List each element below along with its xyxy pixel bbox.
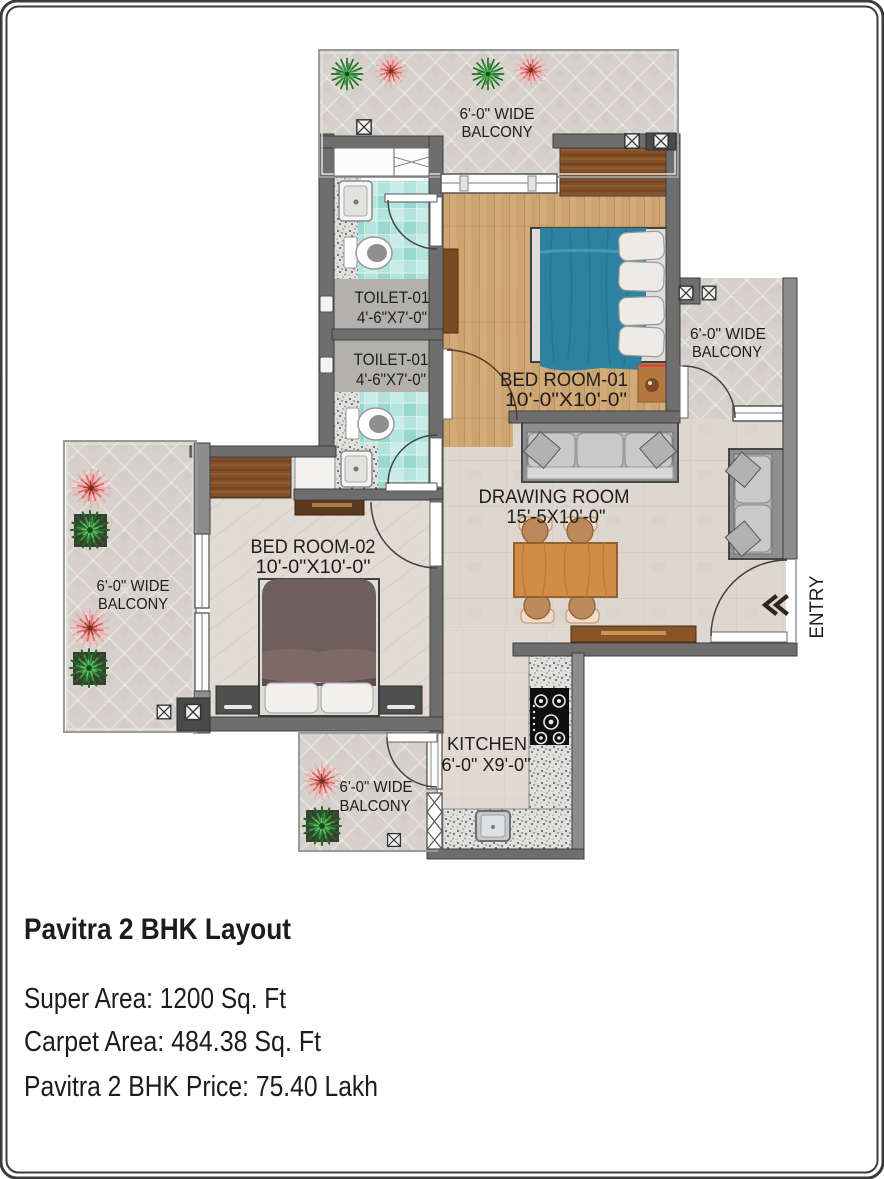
svg-text:6'-0" WIDE: 6'-0" WIDE [340, 779, 413, 796]
svg-text:DRAWING ROOM: DRAWING ROOM [479, 487, 630, 508]
svg-text:BALCONY: BALCONY [98, 596, 168, 613]
svg-text:6'-0" WIDE: 6'-0" WIDE [460, 106, 535, 123]
svg-text:BALCONY: BALCONY [692, 344, 762, 361]
svg-text:6'-0" WIDE: 6'-0" WIDE [97, 578, 170, 595]
svg-text:BED ROOM-02: BED ROOM-02 [251, 537, 376, 558]
svg-text:4'-6"X7'-0": 4'-6"X7'-0" [357, 308, 427, 327]
svg-text:Carpet Area: 484.38 Sq. Ft: Carpet Area: 484.38 Sq. Ft [24, 1026, 321, 1058]
svg-text:BALCONY: BALCONY [340, 798, 411, 815]
svg-text:10'-0"X10'-0": 10'-0"X10'-0" [256, 557, 371, 578]
svg-text:6'-0" WIDE: 6'-0" WIDE [690, 326, 766, 343]
svg-text:Super Area: 1200 Sq. Ft: Super Area: 1200 Sq. Ft [24, 983, 286, 1015]
svg-text:Pavitra 2 BHK Layout: Pavitra 2 BHK Layout [24, 913, 291, 946]
svg-text:BALCONY: BALCONY [462, 124, 533, 141]
svg-text:BED ROOM-01: BED ROOM-01 [500, 370, 628, 391]
svg-text:4'-6"X7'-0": 4'-6"X7'-0" [356, 370, 426, 389]
svg-text:ENTRY: ENTRY [806, 576, 828, 639]
svg-text:TOILET-01: TOILET-01 [355, 288, 430, 307]
svg-text:6'-0" X9'-0": 6'-0" X9'-0" [442, 755, 531, 775]
svg-text:TOILET-01: TOILET-01 [354, 350, 429, 369]
svg-text:10'-0"X10'-0": 10'-0"X10'-0" [505, 390, 627, 411]
svg-text:15'-5X10'-0": 15'-5X10'-0" [507, 507, 606, 528]
svg-text:KITCHEN: KITCHEN [447, 734, 527, 754]
svg-text:Pavitra 2 BHK Price: 75.40 Lak: Pavitra 2 BHK Price: 75.40 Lakh [24, 1071, 378, 1103]
